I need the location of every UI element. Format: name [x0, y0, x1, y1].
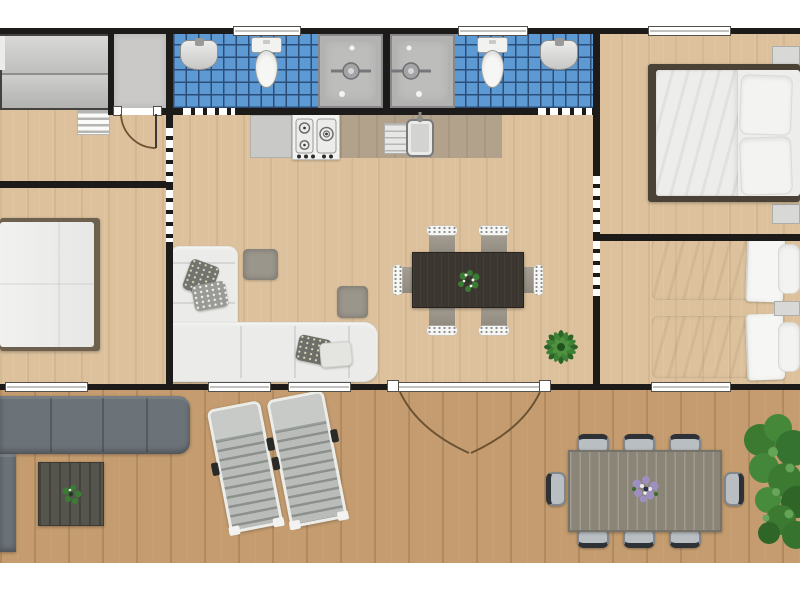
single-bed	[652, 316, 754, 378]
nightstand	[774, 301, 800, 316]
window	[233, 26, 301, 36]
outdoor-corner-sofa	[0, 396, 190, 454]
utility-room-floor	[114, 34, 166, 108]
wall	[166, 242, 173, 384]
outdoor-chair	[546, 472, 566, 506]
door-opening	[593, 176, 600, 234]
lounger-headrest	[270, 393, 327, 432]
pouf	[337, 286, 368, 318]
wall	[383, 34, 390, 108]
window	[458, 26, 528, 36]
nightstand	[772, 204, 800, 224]
door-post	[539, 380, 551, 392]
sofa-cushion	[319, 341, 353, 369]
wall	[593, 296, 600, 384]
single-bed	[652, 238, 754, 300]
sofa-seam	[240, 326, 242, 378]
wardrobe-sliding-door	[2, 36, 108, 75]
washbasin	[540, 40, 578, 70]
wall	[108, 34, 114, 108]
bed-pillow	[739, 136, 793, 196]
door-opening	[183, 108, 235, 115]
duvet	[656, 70, 738, 196]
outdoor-dining-table	[568, 450, 722, 532]
kitchen-cabinet	[250, 115, 292, 158]
door-opening	[121, 108, 154, 115]
window	[648, 26, 731, 36]
bed-pillow	[739, 74, 793, 136]
door-post	[113, 106, 122, 116]
wall	[593, 34, 600, 176]
bed-pillow	[778, 244, 800, 294]
wall	[593, 234, 800, 241]
dining-table	[412, 252, 524, 308]
lounger-armrest	[271, 456, 280, 470]
window	[208, 382, 271, 392]
floor-plan	[0, 0, 800, 600]
outdoor-sofa-seam	[50, 398, 52, 452]
duvet-seam	[58, 222, 60, 347]
outdoor-sofa-seam	[146, 398, 148, 452]
window	[651, 382, 731, 392]
shower-tray	[390, 34, 455, 108]
washbasin	[180, 40, 218, 70]
door-post	[387, 380, 399, 392]
shower-tray	[318, 34, 383, 108]
shelf-unit	[77, 110, 110, 135]
bed-pillow	[778, 322, 800, 372]
french-door-track	[390, 382, 550, 392]
coffee-table	[38, 462, 104, 526]
pouf	[243, 249, 278, 280]
door-opening	[166, 190, 173, 242]
door-opening	[593, 241, 600, 296]
gas-hob	[292, 114, 340, 160]
kitchen-sink	[406, 119, 434, 157]
outdoor-chair	[724, 472, 744, 506]
door-opening	[538, 108, 592, 115]
lounger-armrest	[211, 462, 220, 476]
nightstand	[772, 46, 800, 66]
outdoor-sofa-chaise	[0, 454, 16, 552]
wall	[0, 181, 173, 188]
wardrobe-sliding-door	[2, 75, 108, 108]
sink-drainboard	[384, 123, 408, 154]
lounger-headrest	[210, 404, 263, 443]
duvet-seam	[0, 283, 94, 285]
door-opening	[166, 128, 173, 182]
dining-chair	[429, 305, 455, 327]
outdoor-sofa-seam	[102, 398, 104, 452]
window	[288, 382, 351, 392]
window	[5, 382, 88, 392]
door-post	[153, 106, 162, 116]
dining-chair	[481, 305, 507, 327]
wardrobe-side-panel	[0, 36, 5, 70]
